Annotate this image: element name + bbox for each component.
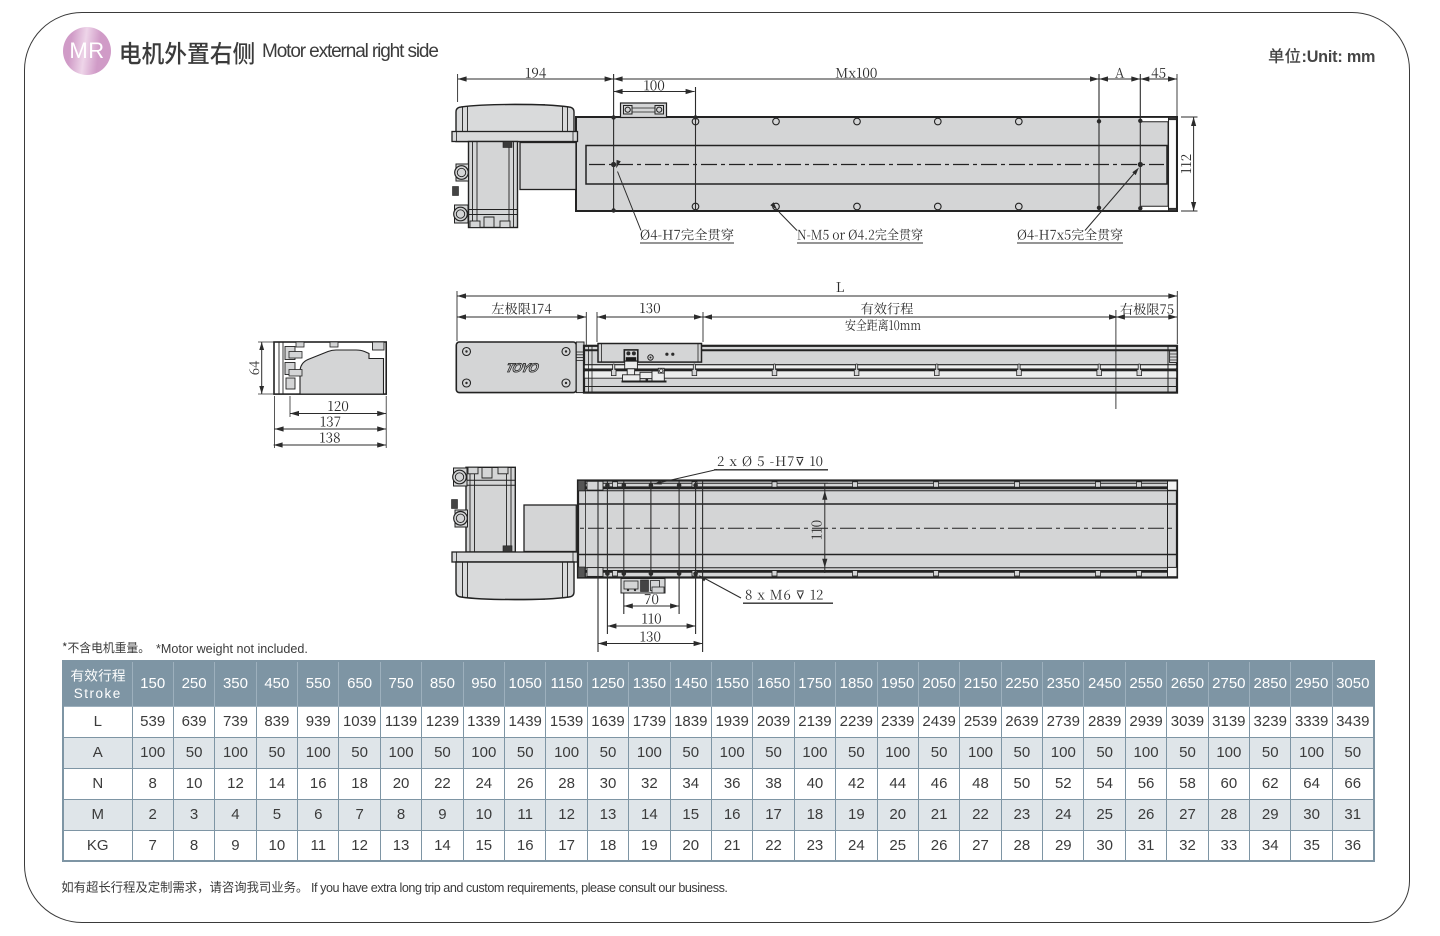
svg-text:TOYO: TOYO: [505, 361, 541, 375]
